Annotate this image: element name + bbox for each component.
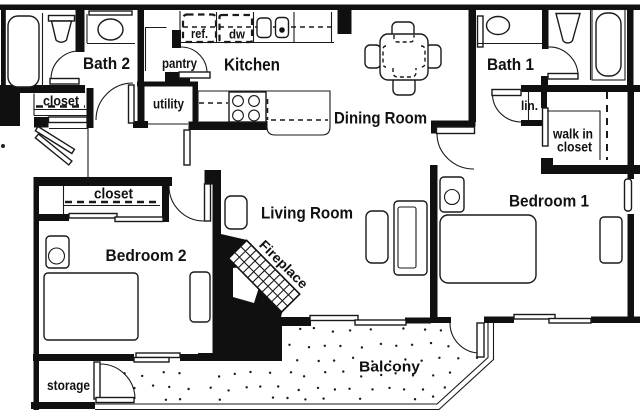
svg-text:dw: dw	[229, 28, 245, 42]
svg-text:Dining Room: Dining Room	[334, 109, 427, 128]
svg-text:Living Room: Living Room	[261, 204, 353, 223]
svg-text:ref.: ref.	[191, 27, 208, 41]
svg-text:Bath 2: Bath 2	[83, 55, 130, 73]
svg-text:Balcony: Balcony	[359, 359, 421, 376]
svg-text:Bedroom 1: Bedroom 1	[509, 192, 589, 211]
svg-text:closet: closet	[557, 139, 592, 155]
svg-text:lin.: lin.	[521, 98, 538, 113]
svg-text:Bedroom 2: Bedroom 2	[106, 246, 187, 265]
svg-text:Kitchen: Kitchen	[224, 55, 280, 75]
svg-text:closet: closet	[94, 187, 133, 203]
svg-text:storage: storage	[47, 377, 90, 393]
svg-text:closet: closet	[43, 93, 79, 109]
svg-text:Bath 1: Bath 1	[487, 56, 534, 74]
svg-text:utility: utility	[153, 97, 184, 112]
svg-text:pantry: pantry	[162, 56, 197, 71]
